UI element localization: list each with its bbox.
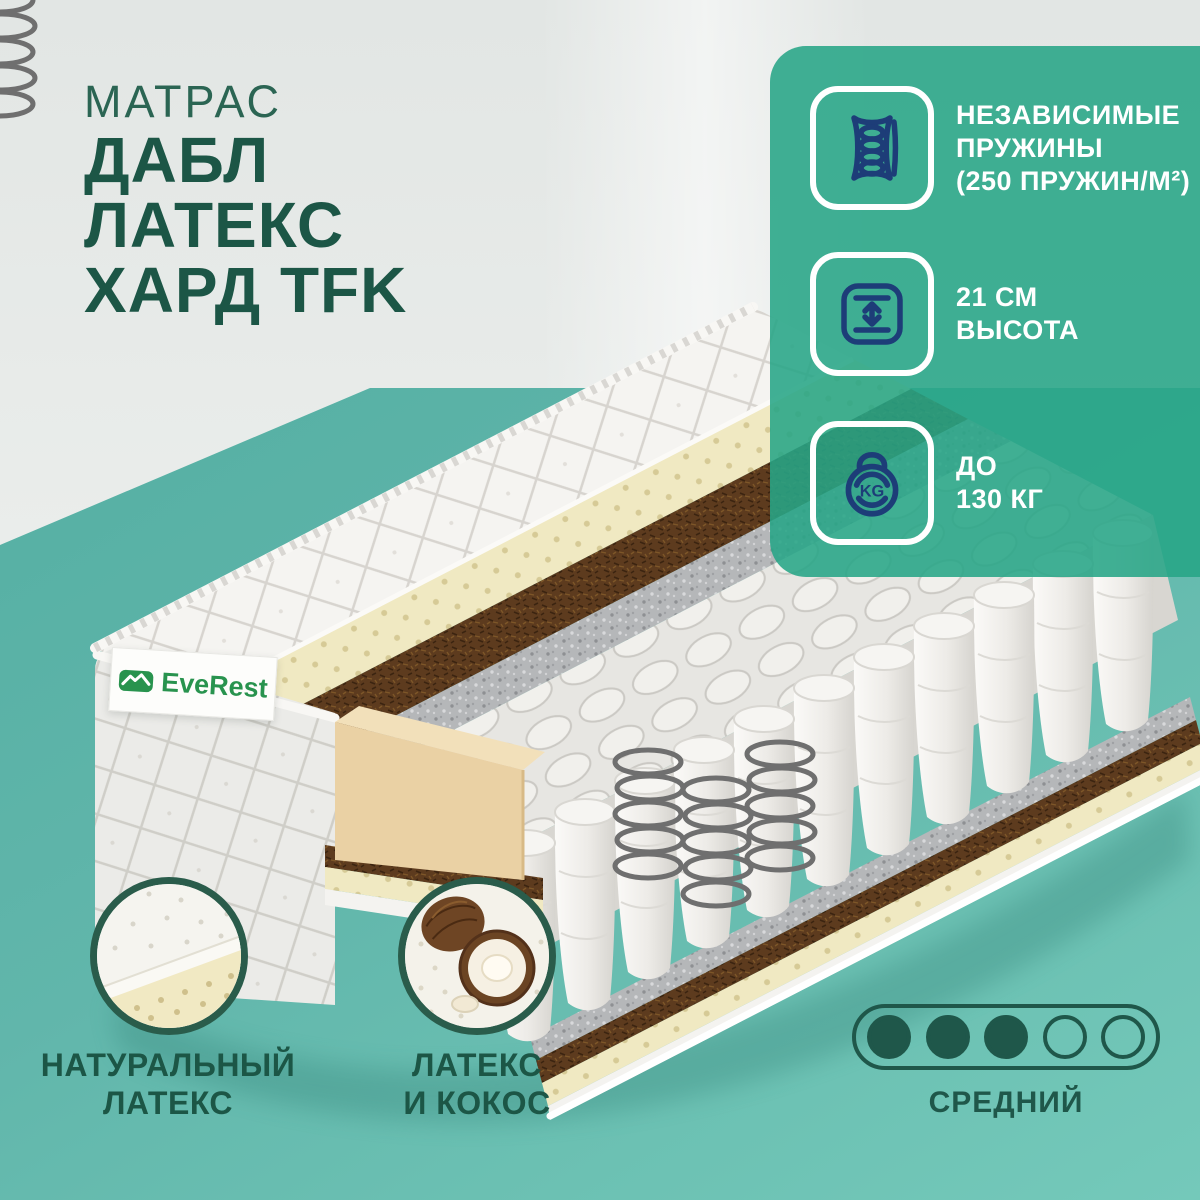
category-label: МАТРАС <box>84 76 407 128</box>
title-block: МАТРАС ДАБЛ ЛАТЕКС ХАРД TFK <box>84 76 407 323</box>
firmness-dot-filled <box>926 1015 970 1059</box>
firmness-dot-filled <box>984 1015 1028 1059</box>
feature-text: ДО 130 КГ <box>956 450 1043 516</box>
firmness-dot-empty <box>1043 1015 1087 1059</box>
product-card: EveRest МАТРАС ДАБЛ ЛАТЕКС ХАРД TFK НЕЗА… <box>0 0 1200 1200</box>
product-title-line-1: ДАБЛ <box>84 128 407 193</box>
callout-label-latex-coconut: ЛАТЕКС И КОКОС <box>352 1046 602 1122</box>
feature-icon-box <box>810 252 934 376</box>
brand-label: EveRest <box>108 647 278 721</box>
kg-icon-text: KG <box>860 482 885 500</box>
brand-name: EveRest <box>160 667 268 704</box>
everest-logo-icon <box>118 666 156 694</box>
height-icon <box>832 274 912 354</box>
product-title-line-3: ХАРД TFK <box>84 258 407 323</box>
feature-icon-box <box>810 86 934 210</box>
firmness-label: СРЕДНИЙ <box>852 1086 1160 1120</box>
feature-independent-springs: НЕЗАВИСИМЫЕ ПРУЖИНЫ (250 ПРУЖИН/М²) <box>810 86 1190 210</box>
latex-foam-image <box>97 884 241 1028</box>
product-title-line-2: ЛАТЕКС <box>84 193 407 258</box>
feature-text: 21 СМ ВЫСОТА <box>956 281 1079 347</box>
feature-icon-box: KG <box>810 421 934 545</box>
feature-text: НЕЗАВИСИМЫЕ ПРУЖИНЫ (250 ПРУЖИН/М²) <box>956 99 1190 198</box>
feature-max-weight: KG ДО 130 КГ <box>810 421 1043 545</box>
callout-label-natural-latex: НАТУРАЛЬНЫЙ ЛАТЕКС <box>35 1046 301 1122</box>
firmness-dot-filled <box>867 1015 911 1059</box>
callout-latex-coconut-photo <box>398 877 556 1035</box>
firmness-scale <box>852 1004 1160 1070</box>
callout-natural-latex-photo <box>90 877 248 1035</box>
firmness-dot-empty <box>1101 1015 1145 1059</box>
coconut-image <box>405 884 549 1028</box>
independent-springs-icon <box>832 108 912 188</box>
feature-height: 21 СМ ВЫСОТА <box>810 252 1079 376</box>
max-weight-icon: KG <box>831 442 913 524</box>
